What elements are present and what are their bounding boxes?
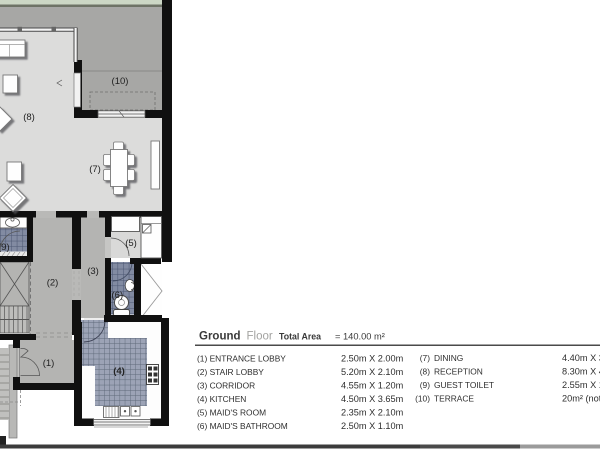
svg-text:(4) KITCHEN: (4) KITCHEN [197, 394, 246, 404]
svg-text:Ground: Ground [199, 331, 241, 343]
svg-text:4.55m X 1.20m: 4.55m X 1.20m [341, 381, 404, 391]
svg-text:(10): (10) [415, 394, 430, 404]
svg-text:Floor: Floor [247, 331, 273, 343]
svg-text:GUEST TOILET: GUEST TOILET [434, 380, 494, 390]
svg-text:DINING: DINING [434, 353, 463, 363]
svg-text:20m² (not included): 20m² (not included) [562, 394, 600, 404]
svg-text:4.50m X 3.65m: 4.50m X 3.65m [341, 394, 404, 404]
svg-text:TERRACE: TERRACE [434, 394, 474, 404]
svg-text:(7): (7) [89, 164, 101, 175]
svg-text:Total Area: Total Area [279, 332, 321, 342]
svg-text:(7): (7) [420, 353, 430, 363]
svg-text:2.55m X 1.45m: 2.55m X 1.45m [562, 380, 600, 390]
svg-text:RECEPTION: RECEPTION [434, 367, 483, 377]
svg-text:2.50m X 1.10m: 2.50m X 1.10m [341, 421, 404, 431]
svg-text:(8): (8) [420, 367, 430, 377]
svg-text:(2) STAIR LOBBY: (2) STAIR LOBBY [197, 367, 264, 377]
svg-text:(5): (5) [125, 238, 137, 249]
svg-text:(4): (4) [113, 366, 125, 377]
svg-text:(9): (9) [0, 242, 10, 253]
svg-text:2.35m X 2.10m: 2.35m X 2.10m [341, 408, 404, 418]
svg-text:(3) CORRIDOR: (3) CORRIDOR [197, 381, 255, 391]
svg-text:(6) MAID'S BATHROOM: (6) MAID'S BATHROOM [197, 421, 288, 431]
svg-text:4.40m X 3.65m: 4.40m X 3.65m [562, 353, 600, 363]
svg-text:8.30m X 4.15m: 8.30m X 4.15m [562, 367, 600, 377]
svg-text:(3): (3) [87, 266, 99, 277]
svg-text:(9): (9) [420, 380, 430, 390]
svg-text:2.50m X 2.00m: 2.50m X 2.00m [341, 354, 404, 364]
svg-text:(5) MAID'S ROOM: (5) MAID'S ROOM [197, 408, 266, 418]
svg-text:(6): (6) [112, 290, 124, 301]
svg-text:(2): (2) [47, 278, 59, 289]
svg-text:(8): (8) [23, 112, 35, 123]
svg-text:5.20m X 2.10m: 5.20m X 2.10m [341, 367, 404, 377]
svg-text:(1) ENTRANCE LOBBY: (1) ENTRANCE LOBBY [197, 354, 286, 364]
svg-text:(10): (10) [112, 76, 129, 87]
svg-text:(1): (1) [43, 358, 55, 369]
svg-text:= 140.00 m²: = 140.00 m² [335, 332, 385, 342]
